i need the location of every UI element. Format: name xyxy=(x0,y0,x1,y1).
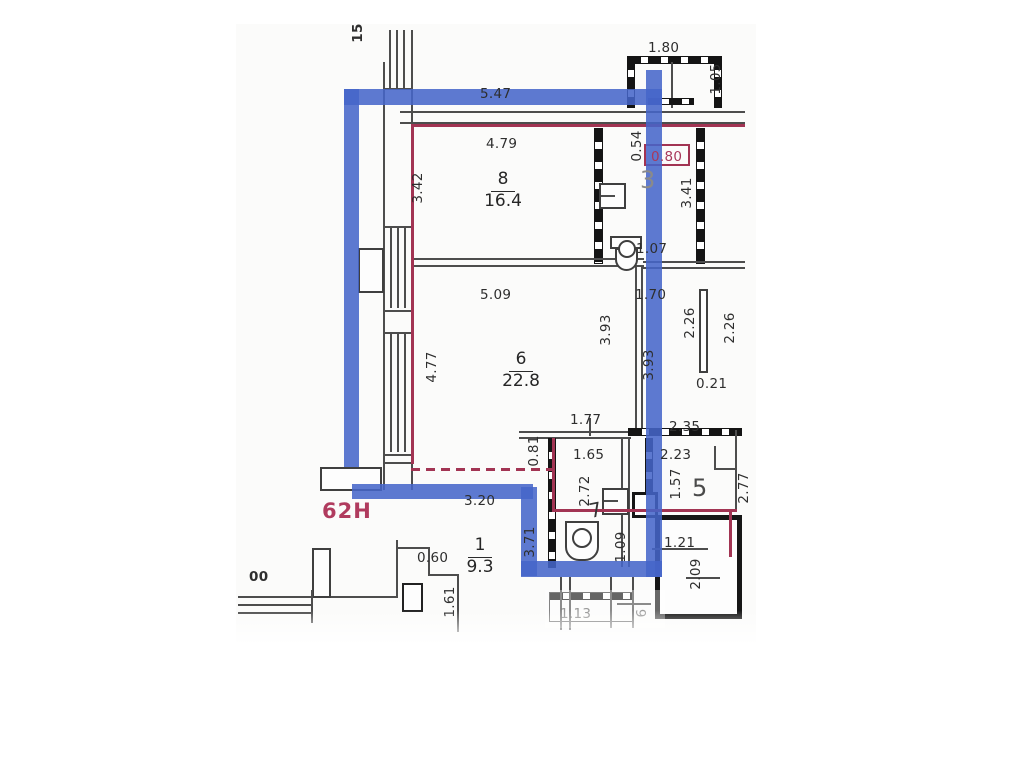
dim-label: 1.21 xyxy=(664,535,695,551)
window-pane-line xyxy=(396,30,398,90)
dim-label: 2.23 xyxy=(660,447,691,463)
toilet-seat-icon xyxy=(572,528,592,548)
dim-label-vertical: 1.09 xyxy=(613,526,629,568)
wall-line xyxy=(714,446,716,470)
dim-label-vertical: 3.41 xyxy=(679,172,695,214)
dim-label: 0.21 xyxy=(696,376,727,392)
wall-notch xyxy=(312,548,331,598)
room-area: 9.3 xyxy=(466,557,493,577)
balcony-door-box xyxy=(358,248,384,293)
window-pane-line xyxy=(390,334,392,452)
bearing-wall xyxy=(696,128,705,264)
sink-tap-line xyxy=(601,195,615,197)
wall-line xyxy=(714,468,736,470)
room-number: 8 xyxy=(491,170,516,192)
unit-boundary-red xyxy=(552,438,555,512)
room-number: 6 xyxy=(509,350,534,372)
dim-label-vertical: 3.93 xyxy=(641,344,657,386)
dim-label-red: 0.80 xyxy=(651,149,682,165)
window-pane-line xyxy=(403,30,405,90)
highlight-bottom-left xyxy=(352,484,533,499)
bottom-margin xyxy=(0,645,1024,768)
room-area: 22.8 xyxy=(502,371,540,391)
left-margin xyxy=(0,0,236,768)
dim-label: 1.80 xyxy=(648,40,679,56)
unit-number-label: 62Н xyxy=(322,499,372,523)
window-line xyxy=(238,612,312,614)
dim-label: 1.13 xyxy=(560,606,591,622)
toilet-seat-icon xyxy=(618,240,636,258)
dim-label-vertical: 1.57 xyxy=(668,463,684,505)
dim-label: 1.77 xyxy=(570,412,601,428)
window-pane-line xyxy=(397,334,399,452)
outline-line xyxy=(396,540,398,598)
window-pane-line xyxy=(389,30,391,90)
dim-label: 2.35 xyxy=(669,419,700,435)
dim-label: 0.60 xyxy=(417,550,448,566)
room-number: 1 xyxy=(468,536,493,558)
right-margin xyxy=(756,0,1024,768)
dim-label-vertical: 1.05 xyxy=(708,58,724,100)
wall-line xyxy=(383,310,413,312)
dim-label-vertical: 3.71 xyxy=(522,521,538,563)
bottom-fade xyxy=(0,610,1024,650)
unit-boundary-red xyxy=(729,509,732,557)
outline-line xyxy=(610,577,612,628)
dim-label-vertical: 2.26 xyxy=(682,302,698,344)
highlight-bottom xyxy=(521,561,662,577)
dim-label: 4.79 xyxy=(486,136,517,152)
room-label-1: 1 9.3 xyxy=(458,536,502,577)
note-label: 00 xyxy=(249,569,268,585)
dim-label: 1.65 xyxy=(573,447,604,463)
window-line xyxy=(238,596,312,598)
dim-label-vertical: 0.81 xyxy=(526,430,542,472)
room-label-8: 8 16.4 xyxy=(477,170,529,211)
note-label-vertical: 6 xyxy=(634,592,650,634)
outline-line xyxy=(560,577,562,630)
wall-line xyxy=(383,454,413,456)
room-label-5: 5 xyxy=(692,474,707,502)
room-area: 16.4 xyxy=(484,191,522,211)
highlight-right xyxy=(646,70,662,577)
outline-line xyxy=(330,596,398,598)
dim-label-vertical: 2.77 xyxy=(736,467,752,509)
dim-label-vertical: 3.93 xyxy=(598,309,614,351)
floor-plan: 5.47 1.80 4.79 0.80 1.07 5.09 1.70 0.21 … xyxy=(0,0,1024,768)
wall-line xyxy=(383,462,413,464)
top-margin xyxy=(0,0,1024,24)
wall-line xyxy=(411,265,644,267)
note-label-vertical: 15 xyxy=(350,12,366,54)
dim-label: 5.47 xyxy=(480,86,511,102)
outline-line xyxy=(397,547,430,549)
dim-label-vertical: 2.09 xyxy=(688,553,704,595)
unit-boundary-red xyxy=(412,124,745,127)
dim-label: 5.09 xyxy=(480,287,511,303)
dim-label-vertical: 0.54 xyxy=(629,125,645,167)
room-label-6: 6 22.8 xyxy=(494,350,548,391)
dim-label-vertical: 4.77 xyxy=(424,346,440,388)
window-pane-line xyxy=(404,334,406,452)
window-pane-line xyxy=(404,228,406,308)
sink-tap-line xyxy=(604,500,618,502)
outline-line xyxy=(311,590,313,623)
window-line xyxy=(238,604,312,606)
window-pane-line xyxy=(390,228,392,308)
dim-label: 1.70 xyxy=(635,287,666,303)
dim-label-vertical: 3.42 xyxy=(410,167,426,209)
room-label-3: 3 xyxy=(640,166,655,194)
dim-label-vertical: 2.26 xyxy=(722,307,738,349)
window-pane-line xyxy=(397,228,399,308)
wall-line xyxy=(411,258,644,260)
dim-label-vertical: 1.61 xyxy=(442,581,458,623)
highlight-left xyxy=(344,89,359,467)
dim-label: 3.20 xyxy=(464,493,495,509)
partition-wall xyxy=(699,289,708,373)
outline-line xyxy=(569,577,571,630)
window-band-line xyxy=(400,111,745,113)
column xyxy=(402,583,423,612)
outline-line xyxy=(428,574,459,576)
dim-label: 1.07 xyxy=(636,241,667,257)
